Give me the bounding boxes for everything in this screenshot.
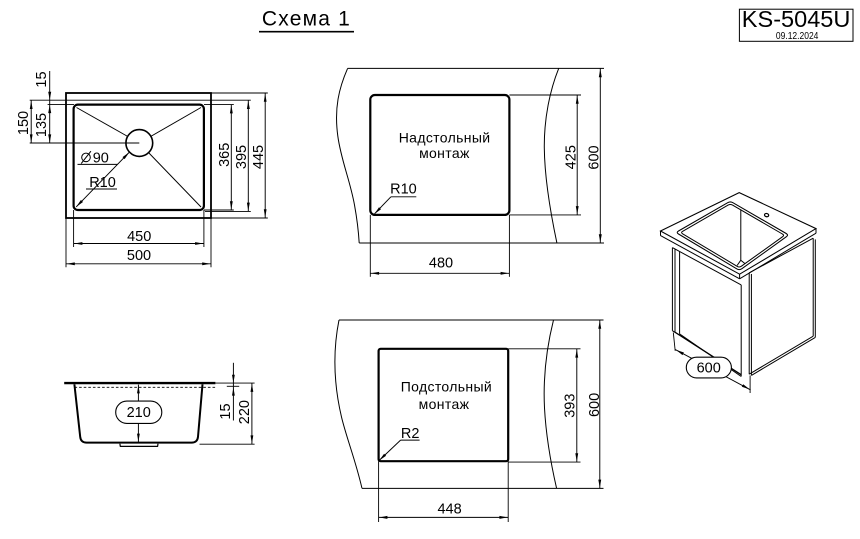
svg-text:600: 600: [586, 145, 602, 169]
svg-text:220: 220: [237, 400, 253, 424]
svg-text:монтаж: монтаж: [419, 145, 470, 161]
svg-text:210: 210: [127, 405, 151, 421]
svg-text:15: 15: [34, 71, 50, 87]
svg-text:15: 15: [218, 403, 234, 419]
svg-text:R10: R10: [89, 175, 116, 191]
svg-text:393: 393: [563, 394, 579, 418]
svg-text:Схема 1: Схема 1: [262, 8, 351, 31]
svg-text:445: 445: [251, 145, 267, 169]
svg-text:448: 448: [437, 501, 461, 517]
svg-text:425: 425: [563, 145, 579, 169]
svg-text:монтаж: монтаж: [419, 396, 470, 412]
svg-text:09.12.2024: 09.12.2024: [776, 31, 819, 42]
svg-text:150: 150: [16, 111, 32, 135]
svg-text:365: 365: [217, 143, 233, 167]
svg-text:480: 480: [429, 256, 453, 272]
svg-text:KS-5045U: KS-5045U: [742, 6, 851, 32]
svg-text:90: 90: [93, 150, 109, 166]
svg-text:R2: R2: [401, 426, 420, 442]
svg-text:Подстольный: Подстольный: [401, 379, 492, 395]
svg-text:Надстольный: Надстольный: [399, 129, 491, 145]
svg-text:600: 600: [697, 361, 721, 377]
svg-text:135: 135: [34, 113, 50, 137]
svg-text:450: 450: [127, 229, 151, 245]
svg-text:500: 500: [127, 248, 151, 264]
svg-text:395: 395: [234, 145, 250, 169]
svg-text:R10: R10: [390, 182, 417, 198]
svg-text:600: 600: [587, 393, 603, 417]
